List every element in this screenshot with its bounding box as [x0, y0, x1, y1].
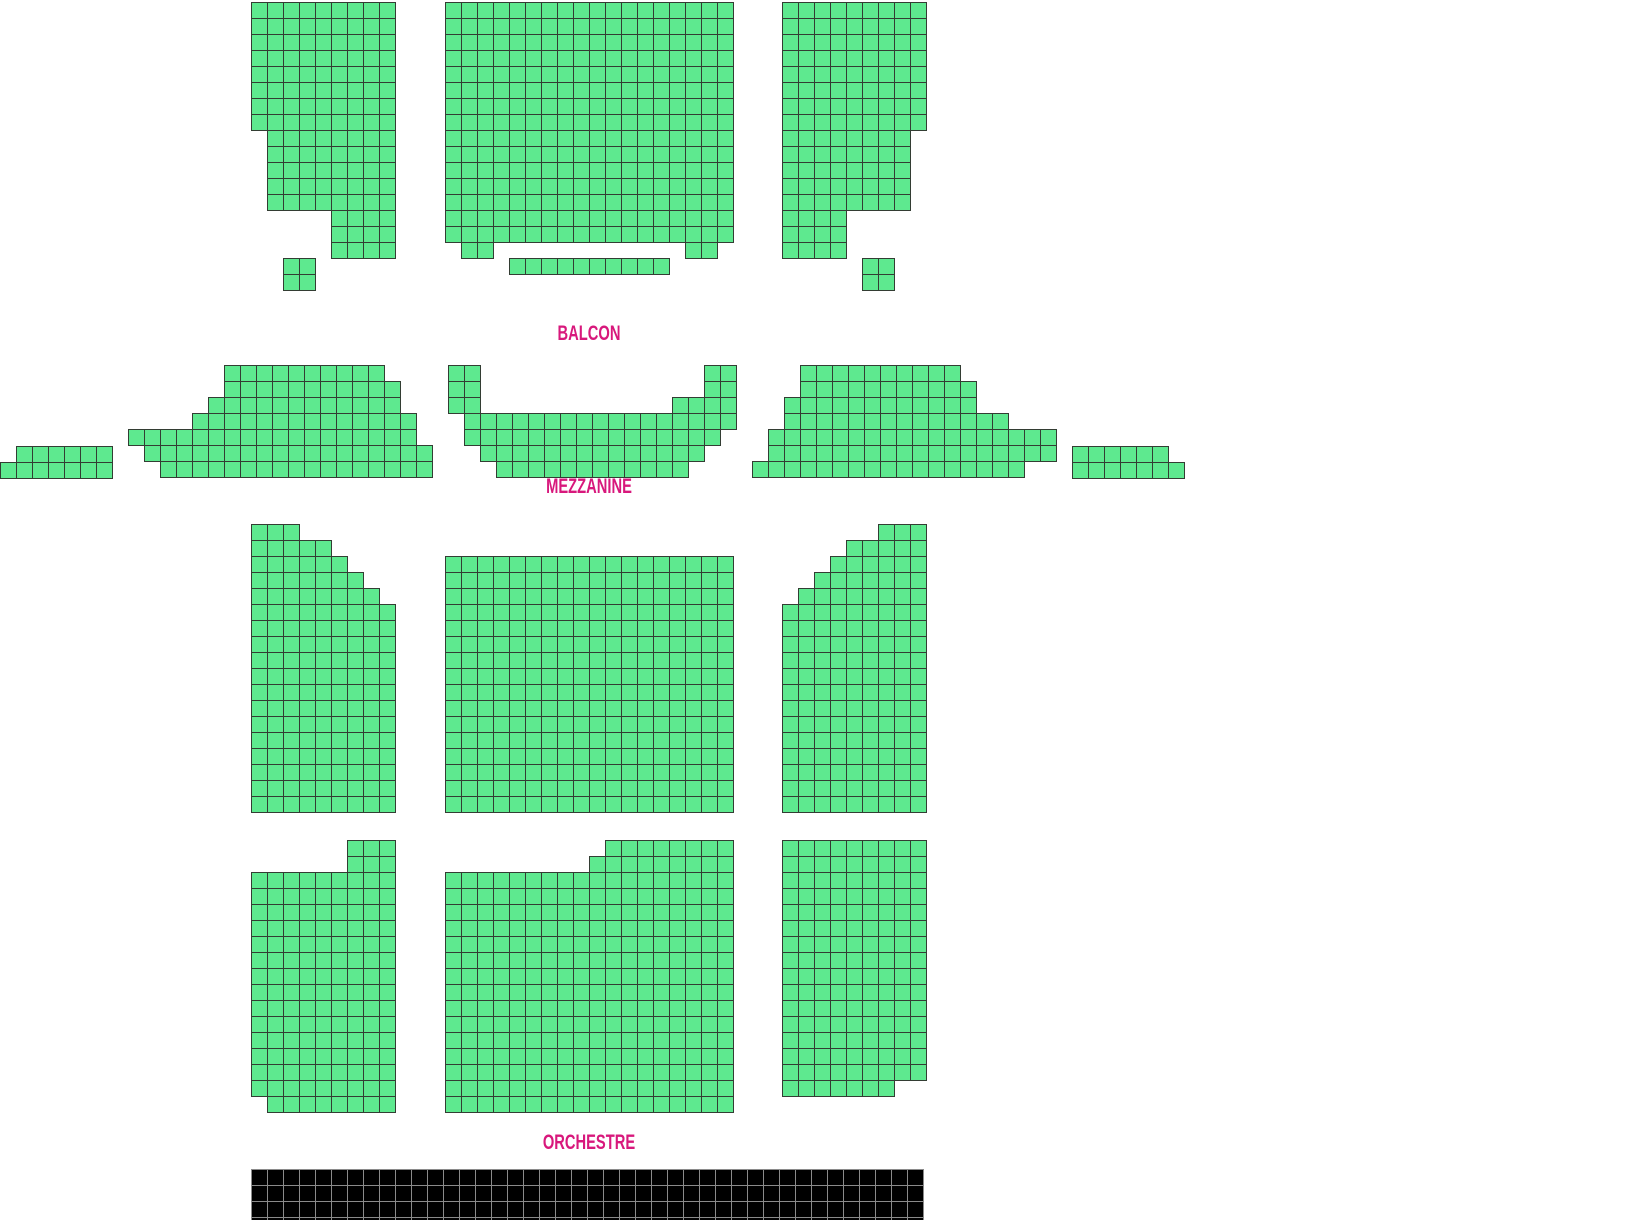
- seat[interactable]: [589, 1064, 606, 1081]
- seat[interactable]: [910, 856, 927, 873]
- seat[interactable]: [653, 34, 670, 51]
- seat[interactable]: [589, 796, 606, 813]
- seat[interactable]: [800, 397, 817, 414]
- seat[interactable]: [798, 34, 815, 51]
- seat[interactable]: [717, 66, 734, 83]
- seat[interactable]: [862, 1000, 879, 1017]
- seat[interactable]: [878, 1000, 895, 1017]
- seat[interactable]: [1072, 462, 1089, 479]
- seat[interactable]: [509, 18, 526, 35]
- seat[interactable]: [557, 620, 574, 637]
- seat[interactable]: [846, 968, 863, 985]
- seat[interactable]: [685, 1048, 702, 1065]
- seat[interactable]: [461, 716, 478, 733]
- seat[interactable]: [637, 98, 654, 115]
- seat[interactable]: [320, 381, 337, 398]
- seat[interactable]: [589, 1048, 606, 1065]
- seat[interactable]: [894, 872, 911, 889]
- seat[interactable]: [299, 82, 316, 99]
- seat[interactable]: [637, 652, 654, 669]
- seat[interactable]: [637, 700, 654, 717]
- seat[interactable]: [573, 780, 590, 797]
- seat[interactable]: [830, 588, 847, 605]
- seat[interactable]: [589, 604, 606, 621]
- seat[interactable]: [605, 210, 622, 227]
- seat[interactable]: [896, 413, 913, 430]
- seat[interactable]: [331, 588, 348, 605]
- seat[interactable]: [910, 732, 927, 749]
- seat[interactable]: [621, 1000, 638, 1017]
- seat[interactable]: [701, 98, 718, 115]
- seat[interactable]: [912, 429, 929, 446]
- seat[interactable]: [347, 780, 364, 797]
- seat[interactable]: [560, 445, 577, 462]
- seat[interactable]: [798, 1032, 815, 1049]
- seat[interactable]: [830, 194, 847, 211]
- seat[interactable]: [541, 178, 558, 195]
- seat[interactable]: [283, 668, 300, 685]
- seat[interactable]: [363, 1064, 380, 1081]
- seat[interactable]: [573, 194, 590, 211]
- seat[interactable]: [267, 780, 284, 797]
- seat[interactable]: [605, 1080, 622, 1097]
- seat[interactable]: [653, 130, 670, 147]
- seat[interactable]: [80, 462, 97, 479]
- seat[interactable]: [701, 856, 718, 873]
- seat[interactable]: [315, 556, 332, 573]
- seat[interactable]: [288, 381, 305, 398]
- seat[interactable]: [461, 82, 478, 99]
- seat[interactable]: [541, 50, 558, 67]
- seat[interactable]: [128, 429, 145, 446]
- seat[interactable]: [509, 968, 526, 985]
- seat[interactable]: [685, 1064, 702, 1081]
- seat[interactable]: [685, 210, 702, 227]
- seat[interactable]: [830, 652, 847, 669]
- seat[interactable]: [576, 429, 593, 446]
- seat[interactable]: [685, 130, 702, 147]
- seat[interactable]: [894, 524, 911, 541]
- seat[interactable]: [347, 652, 364, 669]
- seat[interactable]: [240, 397, 257, 414]
- seat[interactable]: [717, 920, 734, 937]
- seat[interactable]: [363, 780, 380, 797]
- seat[interactable]: [1104, 446, 1121, 463]
- seat[interactable]: [912, 381, 929, 398]
- seat[interactable]: [315, 1064, 332, 1081]
- seat[interactable]: [669, 178, 686, 195]
- seat[interactable]: [605, 1000, 622, 1017]
- seat[interactable]: [267, 732, 284, 749]
- seat[interactable]: [363, 226, 380, 243]
- seat[interactable]: [509, 620, 526, 637]
- seat[interactable]: [445, 668, 462, 685]
- seat[interactable]: [605, 888, 622, 905]
- seat[interactable]: [800, 429, 817, 446]
- seat[interactable]: [605, 872, 622, 889]
- seat[interactable]: [862, 162, 879, 179]
- seat[interactable]: [493, 66, 510, 83]
- seat[interactable]: [331, 2, 348, 19]
- seat[interactable]: [331, 872, 348, 889]
- seat[interactable]: [798, 226, 815, 243]
- seat[interactable]: [480, 429, 497, 446]
- seat[interactable]: [798, 840, 815, 857]
- seat[interactable]: [589, 588, 606, 605]
- seat[interactable]: [272, 413, 289, 430]
- seat[interactable]: [267, 904, 284, 921]
- seat[interactable]: [814, 888, 831, 905]
- seat[interactable]: [589, 620, 606, 637]
- seat[interactable]: [685, 146, 702, 163]
- seat[interactable]: [363, 840, 380, 857]
- seat[interactable]: [557, 588, 574, 605]
- seat[interactable]: [445, 162, 462, 179]
- seat[interactable]: [331, 146, 348, 163]
- seat[interactable]: [669, 936, 686, 953]
- seat[interactable]: [464, 381, 481, 398]
- seat[interactable]: [910, 984, 927, 1001]
- seat[interactable]: [717, 1000, 734, 1017]
- seat[interactable]: [589, 556, 606, 573]
- seat[interactable]: [509, 194, 526, 211]
- seat[interactable]: [672, 397, 689, 414]
- seat[interactable]: [477, 226, 494, 243]
- seat[interactable]: [315, 668, 332, 685]
- seat[interactable]: [653, 796, 670, 813]
- seat[interactable]: [315, 1016, 332, 1033]
- seat[interactable]: [331, 1016, 348, 1033]
- seat[interactable]: [461, 226, 478, 243]
- seat[interactable]: [846, 732, 863, 749]
- seat[interactable]: [525, 34, 542, 51]
- seat[interactable]: [283, 194, 300, 211]
- seat[interactable]: [798, 732, 815, 749]
- seat[interactable]: [445, 114, 462, 131]
- seat[interactable]: [331, 668, 348, 685]
- seat[interactable]: [685, 840, 702, 857]
- seat[interactable]: [544, 445, 561, 462]
- seat[interactable]: [830, 920, 847, 937]
- seat[interactable]: [509, 684, 526, 701]
- seat[interactable]: [896, 381, 913, 398]
- seat[interactable]: [267, 588, 284, 605]
- seat[interactable]: [637, 1080, 654, 1097]
- seat[interactable]: [685, 1032, 702, 1049]
- seat[interactable]: [496, 445, 513, 462]
- seat[interactable]: [814, 1032, 831, 1049]
- seat[interactable]: [653, 904, 670, 921]
- seat[interactable]: [894, 764, 911, 781]
- seat[interactable]: [493, 114, 510, 131]
- seat[interactable]: [621, 652, 638, 669]
- seat[interactable]: [894, 572, 911, 589]
- seat[interactable]: [717, 556, 734, 573]
- seat[interactable]: [461, 872, 478, 889]
- seat[interactable]: [331, 556, 348, 573]
- seat[interactable]: [525, 1096, 542, 1113]
- seat[interactable]: [637, 194, 654, 211]
- seat[interactable]: [637, 872, 654, 889]
- seat[interactable]: [928, 429, 945, 446]
- seat[interactable]: [461, 652, 478, 669]
- seat[interactable]: [605, 684, 622, 701]
- seat[interactable]: [445, 920, 462, 937]
- seat[interactable]: [605, 66, 622, 83]
- seat[interactable]: [862, 1048, 879, 1065]
- seat[interactable]: [653, 716, 670, 733]
- seat[interactable]: [347, 748, 364, 765]
- seat[interactable]: [461, 1048, 478, 1065]
- seat[interactable]: [878, 652, 895, 669]
- seat[interactable]: [830, 178, 847, 195]
- seat[interactable]: [299, 748, 316, 765]
- seat[interactable]: [862, 652, 879, 669]
- seat[interactable]: [894, 66, 911, 83]
- seat[interactable]: [299, 652, 316, 669]
- seat[interactable]: [944, 381, 961, 398]
- seat[interactable]: [493, 130, 510, 147]
- seat[interactable]: [477, 210, 494, 227]
- seat[interactable]: [448, 397, 465, 414]
- seat[interactable]: [798, 1080, 815, 1097]
- seat[interactable]: [637, 920, 654, 937]
- seat[interactable]: [589, 1032, 606, 1049]
- seat[interactable]: [605, 114, 622, 131]
- seat[interactable]: [315, 732, 332, 749]
- seat[interactable]: [240, 461, 257, 478]
- seat[interactable]: [509, 162, 526, 179]
- seat[interactable]: [637, 668, 654, 685]
- seat[interactable]: [894, 98, 911, 115]
- seat[interactable]: [557, 796, 574, 813]
- seat[interactable]: [379, 700, 396, 717]
- seat[interactable]: [653, 210, 670, 227]
- seat[interactable]: [461, 210, 478, 227]
- seat[interactable]: [304, 429, 321, 446]
- seat[interactable]: [605, 984, 622, 1001]
- seat[interactable]: [878, 604, 895, 621]
- seat[interactable]: [653, 98, 670, 115]
- seat[interactable]: [251, 700, 268, 717]
- seat[interactable]: [1072, 446, 1089, 463]
- seat[interactable]: [621, 226, 638, 243]
- seat[interactable]: [347, 1064, 364, 1081]
- seat[interactable]: [379, 226, 396, 243]
- seat[interactable]: [445, 764, 462, 781]
- seat[interactable]: [846, 34, 863, 51]
- seat[interactable]: [862, 796, 879, 813]
- seat[interactable]: [701, 194, 718, 211]
- seat[interactable]: [701, 178, 718, 195]
- seat[interactable]: [347, 604, 364, 621]
- seat[interactable]: [320, 445, 337, 462]
- seat[interactable]: [637, 162, 654, 179]
- seat[interactable]: [589, 732, 606, 749]
- seat[interactable]: [477, 82, 494, 99]
- seat[interactable]: [525, 114, 542, 131]
- seat[interactable]: [621, 952, 638, 969]
- seat[interactable]: [878, 780, 895, 797]
- seat[interactable]: [331, 716, 348, 733]
- seat[interactable]: [557, 920, 574, 937]
- seat[interactable]: [240, 413, 257, 430]
- seat[interactable]: [525, 146, 542, 163]
- seat[interactable]: [1008, 429, 1025, 446]
- seat[interactable]: [928, 365, 945, 382]
- seat[interactable]: [653, 1048, 670, 1065]
- seat[interactable]: [541, 258, 558, 275]
- seat[interactable]: [621, 258, 638, 275]
- seat[interactable]: [701, 796, 718, 813]
- seat[interactable]: [573, 178, 590, 195]
- seat[interactable]: [589, 872, 606, 889]
- seat[interactable]: [701, 872, 718, 889]
- seat[interactable]: [347, 636, 364, 653]
- seat[interactable]: [960, 429, 977, 446]
- seat[interactable]: [621, 82, 638, 99]
- seat[interactable]: [784, 445, 801, 462]
- seat[interactable]: [685, 936, 702, 953]
- seat[interactable]: [894, 34, 911, 51]
- seat[interactable]: [814, 764, 831, 781]
- seat[interactable]: [814, 162, 831, 179]
- seat[interactable]: [685, 178, 702, 195]
- seat[interactable]: [315, 146, 332, 163]
- seat[interactable]: [477, 2, 494, 19]
- seat[interactable]: [525, 162, 542, 179]
- seat[interactable]: [573, 984, 590, 1001]
- seat[interactable]: [464, 397, 481, 414]
- seat[interactable]: [637, 748, 654, 765]
- seat[interactable]: [782, 856, 799, 873]
- seat[interactable]: [299, 636, 316, 653]
- seat[interactable]: [637, 1000, 654, 1017]
- seat[interactable]: [782, 34, 799, 51]
- seat[interactable]: [445, 556, 462, 573]
- seat[interactable]: [541, 732, 558, 749]
- seat[interactable]: [331, 1048, 348, 1065]
- seat[interactable]: [605, 258, 622, 275]
- seat[interactable]: [717, 146, 734, 163]
- seat[interactable]: [283, 652, 300, 669]
- seat[interactable]: [669, 146, 686, 163]
- seat[interactable]: [589, 968, 606, 985]
- seat[interactable]: [461, 556, 478, 573]
- seat[interactable]: [878, 748, 895, 765]
- seat[interactable]: [541, 556, 558, 573]
- seat[interactable]: [685, 114, 702, 131]
- seat[interactable]: [717, 936, 734, 953]
- seat[interactable]: [832, 429, 849, 446]
- seat[interactable]: [669, 556, 686, 573]
- seat[interactable]: [862, 904, 879, 921]
- seat[interactable]: [477, 904, 494, 921]
- seat[interactable]: [363, 716, 380, 733]
- seat[interactable]: [832, 445, 849, 462]
- seat[interactable]: [798, 716, 815, 733]
- seat[interactable]: [653, 1096, 670, 1113]
- seat[interactable]: [267, 1080, 284, 1097]
- seat[interactable]: [445, 888, 462, 905]
- seat[interactable]: [541, 1048, 558, 1065]
- seat[interactable]: [720, 413, 737, 430]
- seat[interactable]: [685, 856, 702, 873]
- seat[interactable]: [477, 556, 494, 573]
- seat[interactable]: [283, 1096, 300, 1113]
- seat[interactable]: [621, 114, 638, 131]
- seat[interactable]: [862, 258, 879, 275]
- seat[interactable]: [621, 732, 638, 749]
- seat[interactable]: [267, 1032, 284, 1049]
- seat[interactable]: [798, 856, 815, 873]
- seat[interactable]: [782, 764, 799, 781]
- seat[interactable]: [493, 604, 510, 621]
- seat[interactable]: [621, 984, 638, 1001]
- seat[interactable]: [878, 572, 895, 589]
- seat[interactable]: [573, 732, 590, 749]
- seat[interactable]: [685, 572, 702, 589]
- seat[interactable]: [846, 194, 863, 211]
- seat[interactable]: [878, 684, 895, 701]
- seat[interactable]: [573, 764, 590, 781]
- seat[interactable]: [304, 365, 321, 382]
- seat[interactable]: [832, 413, 849, 430]
- seat[interactable]: [272, 397, 289, 414]
- seat[interactable]: [717, 572, 734, 589]
- seat[interactable]: [701, 2, 718, 19]
- seat[interactable]: [589, 1000, 606, 1017]
- seat[interactable]: [878, 888, 895, 905]
- seat[interactable]: [878, 588, 895, 605]
- seat[interactable]: [363, 178, 380, 195]
- seat[interactable]: [685, 796, 702, 813]
- seat[interactable]: [589, 764, 606, 781]
- seat[interactable]: [928, 413, 945, 430]
- seat[interactable]: [299, 796, 316, 813]
- seat[interactable]: [782, 936, 799, 953]
- seat[interactable]: [48, 446, 65, 463]
- seat[interactable]: [637, 18, 654, 35]
- seat[interactable]: [493, 684, 510, 701]
- seat[interactable]: [347, 34, 364, 51]
- seat[interactable]: [464, 429, 481, 446]
- seat[interactable]: [637, 226, 654, 243]
- seat[interactable]: [445, 1000, 462, 1017]
- seat[interactable]: [862, 984, 879, 1001]
- seat[interactable]: [717, 130, 734, 147]
- seat[interactable]: [878, 700, 895, 717]
- seat[interactable]: [336, 381, 353, 398]
- seat[interactable]: [573, 668, 590, 685]
- seat[interactable]: [846, 984, 863, 1001]
- seat[interactable]: [509, 872, 526, 889]
- seat[interactable]: [283, 700, 300, 717]
- seat[interactable]: [605, 1032, 622, 1049]
- seat[interactable]: [80, 446, 97, 463]
- seat[interactable]: [267, 1064, 284, 1081]
- seat[interactable]: [64, 462, 81, 479]
- seat[interactable]: [315, 194, 332, 211]
- seat[interactable]: [672, 445, 689, 462]
- seat[interactable]: [512, 429, 529, 446]
- seat[interactable]: [653, 684, 670, 701]
- seat[interactable]: [589, 34, 606, 51]
- seat[interactable]: [477, 1048, 494, 1065]
- seat[interactable]: [288, 397, 305, 414]
- seat[interactable]: [782, 1048, 799, 1065]
- seat[interactable]: [509, 556, 526, 573]
